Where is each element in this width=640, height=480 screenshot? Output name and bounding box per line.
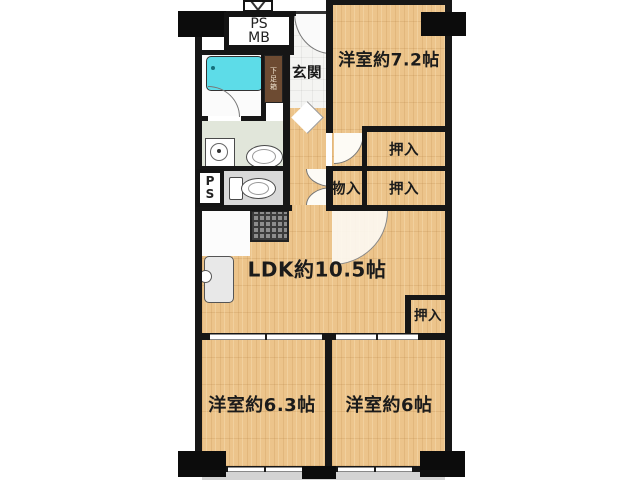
pillar-top-right <box>421 12 466 36</box>
wall-closet3-top <box>405 295 452 300</box>
wall-right <box>445 0 452 472</box>
stove-icon <box>250 210 289 242</box>
ps-mb-label-line2: MB <box>248 31 270 45</box>
wall-bath-south-b <box>241 116 266 121</box>
pipe-space-box: P S <box>196 169 224 207</box>
bathtub-drain <box>211 66 215 70</box>
ldk-label: LDK約10.5帖 <box>248 254 387 283</box>
floor-plan: PS MB P S 下足箱 洋室約7.2帖 押入 押入 物入 玄関 LDK約10… <box>0 0 640 480</box>
wall-bedrooms-divider <box>325 340 332 472</box>
washing-machine-dot <box>217 149 221 153</box>
pillar-bottom-right <box>420 451 465 477</box>
shoe-cabinet: 下足箱 <box>264 55 283 103</box>
wall-left <box>195 11 202 472</box>
ps-mb-box: PS MB <box>224 12 294 50</box>
wall-closet1-top <box>362 126 452 132</box>
sliding-door-tick-2 <box>376 333 378 340</box>
vanity-sink-inner <box>252 149 276 164</box>
pillar-bottom-left <box>178 451 226 477</box>
bedroom3-label: 洋室約6帖 <box>345 391 432 417</box>
wall-closet-divider <box>333 166 452 171</box>
sliding-door-tick-1 <box>265 333 267 340</box>
wall-bath-south-a <box>202 116 208 121</box>
window-tick-1 <box>264 466 266 472</box>
wall-hallrow-south-b <box>332 205 452 211</box>
pillar-top-left <box>178 11 226 37</box>
closet1-label: 押入 <box>389 139 419 160</box>
toilet-bowl-inner <box>248 182 269 195</box>
closet3-label: 押入 <box>414 304 442 324</box>
entrance-label: 玄関 <box>292 62 322 83</box>
pipe-space-label-line2: S <box>206 188 215 201</box>
pillar-bottom-middle <box>302 466 336 479</box>
wall-top-bedroom1 <box>332 0 445 5</box>
meter-box <box>243 0 273 12</box>
storage-label: 物入 <box>331 178 361 199</box>
closet2-label: 押入 <box>389 178 419 199</box>
kitchen-floor <box>202 211 250 256</box>
wall-hall-west <box>283 50 290 211</box>
window-tick-2 <box>374 466 376 472</box>
wall-hall-east-upper <box>326 0 333 133</box>
bedroom1-label: 洋室約7.2帖 <box>338 46 440 71</box>
bedroom2-label: 洋室約6.3帖 <box>208 391 315 417</box>
shoe-cabinet-label: 下足箱 <box>269 67 279 91</box>
mb-door-marker-right <box>257 0 267 11</box>
ps-mb-label-line1: PS <box>250 17 267 31</box>
